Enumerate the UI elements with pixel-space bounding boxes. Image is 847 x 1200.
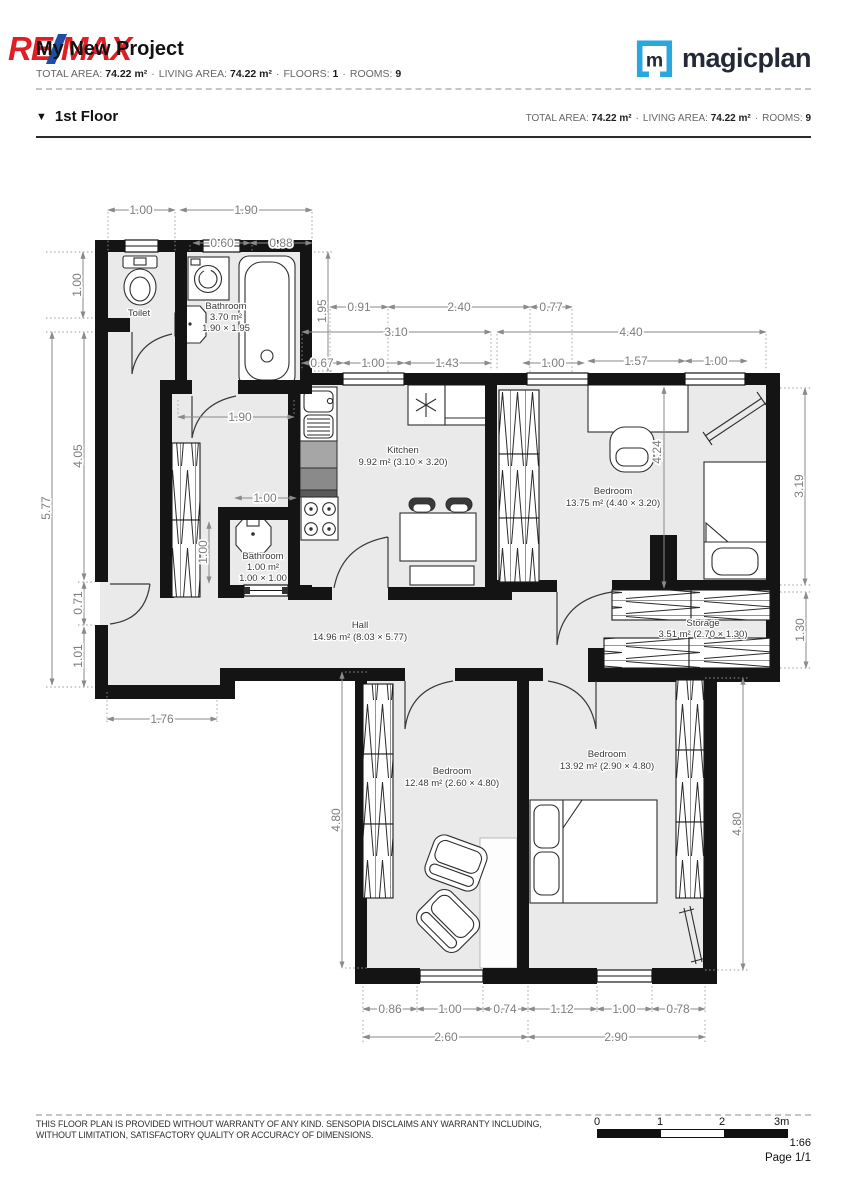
dim-label: 3.10 <box>384 325 408 339</box>
wardrobe <box>172 443 200 520</box>
toilet-fixture <box>123 256 157 305</box>
dim-label: 4.40 <box>619 325 643 339</box>
sliding-door-small-bathroom <box>244 585 288 596</box>
dim-label: 1.12 <box>550 1002 574 1016</box>
scale-tick-3: 3m <box>774 1116 789 1128</box>
stat-separator: · <box>276 68 280 80</box>
dim-label: 1.00 <box>70 273 84 297</box>
floor-plan-drawing: 1.00 1.90 0.60 0.88 0.91 2.40 0.77 3.10 … <box>0 0 847 1200</box>
washing-machine <box>188 257 229 300</box>
dim-label: 1.90 <box>228 410 252 424</box>
dim-label: 0.74 <box>493 1002 517 1016</box>
stat-value: 1 <box>333 68 339 80</box>
dim-label: 4.80 <box>329 808 343 832</box>
stat-value: 74.22 m² <box>230 68 272 80</box>
dim-label: 5.77 <box>39 496 53 520</box>
dim-label: 2.90 <box>604 1030 628 1044</box>
window <box>597 970 652 982</box>
dim-label: 1.00 <box>361 356 385 370</box>
dim-label: 1.00 <box>541 356 565 370</box>
svg-text:12.48 m² (2.60 × 4.80): 12.48 m² (2.60 × 4.80) <box>405 778 499 789</box>
dim-label: 0.77 <box>539 300 563 314</box>
scale-bar <box>597 1129 788 1138</box>
dim-label: 1.76 <box>150 712 174 726</box>
dim-label: 1.00 <box>612 1002 636 1016</box>
window <box>420 970 483 982</box>
footer-divider <box>36 1114 811 1116</box>
svg-text:Storage: Storage <box>686 618 719 629</box>
wardrobe <box>363 824 393 898</box>
dim-label: 1.00 <box>704 354 728 368</box>
dim-label: 0.78 <box>666 1002 690 1016</box>
single-bed <box>704 462 768 579</box>
dim-label: 1.00 <box>438 1002 462 1016</box>
double-bed <box>530 800 657 903</box>
stove <box>301 497 338 540</box>
dim-label: 0.86 <box>378 1002 402 1016</box>
page-number: Page 1/1 <box>765 1152 811 1164</box>
stat-label: LIVING AREA: <box>159 68 227 80</box>
wardrobe <box>363 754 393 824</box>
scale-bar-segment <box>724 1130 787 1137</box>
dim-label: 1.00 <box>253 491 277 505</box>
kitchen-sink-unit <box>300 387 337 441</box>
svg-text:Bedroom: Bedroom <box>433 766 472 777</box>
stat-label: ROOMS: <box>350 68 393 80</box>
project-title: My New Project <box>36 38 184 61</box>
dim-label: 1.30 <box>793 618 807 642</box>
wardrobe <box>676 750 704 822</box>
window <box>527 373 588 385</box>
stat-separator: · <box>342 68 346 80</box>
dim-label: 1.00 <box>196 540 210 564</box>
dim-label: 2.40 <box>447 300 471 314</box>
svg-text:3.51 m² (2.70 × 1.30): 3.51 m² (2.70 × 1.30) <box>659 629 748 640</box>
window <box>685 373 745 385</box>
svg-text:Bathroom: Bathroom <box>205 301 246 312</box>
svg-text:13.92 m² (2.90 × 4.80): 13.92 m² (2.90 × 4.80) <box>560 761 654 772</box>
svg-text:1.00 × 1.00: 1.00 × 1.00 <box>239 573 287 584</box>
room-label-toilet: Toilet <box>128 308 151 319</box>
stat-separator: · <box>151 68 155 80</box>
stat-value: 9 <box>395 68 401 80</box>
svg-text:14.96 m² (8.03 × 5.77): 14.96 m² (8.03 × 5.77) <box>313 632 407 643</box>
scale-bar-segment <box>661 1130 724 1137</box>
svg-text:13.75 m² (4.40 × 3.20): 13.75 m² (4.40 × 3.20) <box>566 498 660 509</box>
dim-label: 1.01 <box>71 644 85 668</box>
stat-label: TOTAL AREA: <box>36 68 102 80</box>
magicplan-logo: m magicplan <box>636 40 811 77</box>
stat-value: 74.22 m² <box>105 68 147 80</box>
desk <box>588 385 688 432</box>
desk-chair <box>610 427 654 472</box>
svg-text:m: m <box>646 49 663 71</box>
wardrobe <box>499 518 539 582</box>
svg-text:Bathroom: Bathroom <box>242 551 283 562</box>
dim-label: 4.24 <box>650 440 664 464</box>
wardrobe <box>676 822 704 898</box>
bathtub <box>239 256 295 386</box>
scale-tick-0: 0 <box>594 1116 600 1128</box>
svg-text:1.00 m²: 1.00 m² <box>247 562 279 573</box>
scale-tick-2: 2 <box>719 1116 725 1128</box>
wardrobe <box>363 684 393 754</box>
dim-label: 4.05 <box>71 444 85 468</box>
svg-text:Bedroom: Bedroom <box>588 749 627 760</box>
kitchen-counter <box>300 441 337 497</box>
dim-label: 1.90 <box>234 203 258 217</box>
wardrobe <box>689 638 770 668</box>
stat-label: FLOORS: <box>284 68 330 80</box>
scale-bar-segment <box>598 1130 661 1137</box>
dim-label: 4.80 <box>730 812 744 836</box>
magicplan-icon: m <box>636 40 673 77</box>
project-stats: TOTAL AREA: 74.22 m²·LIVING AREA: 74.22 … <box>36 68 401 80</box>
floor-plan-report-page: REMAX My New Project TOTAL AREA: 74.22 m… <box>0 0 847 1200</box>
window <box>125 240 158 252</box>
wardrobe <box>499 454 539 518</box>
fridge <box>408 385 445 425</box>
svg-text:Hall: Hall <box>352 620 368 631</box>
dim-label: 0.60 <box>210 236 234 250</box>
disclaimer-line-2: WITHOUT LIMITATION, SATISFACTORY QUALITY… <box>36 1130 542 1141</box>
dim-label: 0.88 <box>269 236 293 250</box>
disclaimer-line-1: THIS FLOOR PLAN IS PROVIDED WITHOUT WARR… <box>36 1119 542 1130</box>
wardrobe <box>604 638 689 668</box>
wardrobe <box>676 680 704 750</box>
disclaimer: THIS FLOOR PLAN IS PROVIDED WITHOUT WARR… <box>36 1119 542 1141</box>
small-bathroom-sink <box>236 519 271 553</box>
dim-label: 1.00 <box>129 203 153 217</box>
dim-label: 0.67 <box>310 356 334 370</box>
wardrobe <box>612 590 691 620</box>
svg-text:3.70 m²: 3.70 m² <box>210 312 242 323</box>
dim-label: 1.57 <box>624 354 648 368</box>
window <box>343 373 404 385</box>
dim-label: 1.43 <box>435 356 459 370</box>
svg-text:Bedroom: Bedroom <box>594 486 633 497</box>
magicplan-wordmark: magicplan <box>682 43 811 74</box>
svg-text:9.92 m² (3.10 × 3.20): 9.92 m² (3.10 × 3.20) <box>359 457 448 468</box>
dim-label: 0.91 <box>347 300 371 314</box>
svg-text:1.90 × 1.95: 1.90 × 1.95 <box>202 323 250 334</box>
dim-label: 2.60 <box>434 1030 458 1044</box>
svg-text:Kitchen: Kitchen <box>387 445 419 456</box>
scale-tick-1: 1 <box>657 1116 663 1128</box>
dim-label: 3.19 <box>792 474 806 498</box>
scale-ratio: 1:66 <box>790 1137 811 1149</box>
wardrobe <box>691 590 770 620</box>
dim-label: 1.95 <box>315 299 329 323</box>
wardrobe <box>499 390 539 454</box>
dim-label: 0.71 <box>71 591 85 615</box>
